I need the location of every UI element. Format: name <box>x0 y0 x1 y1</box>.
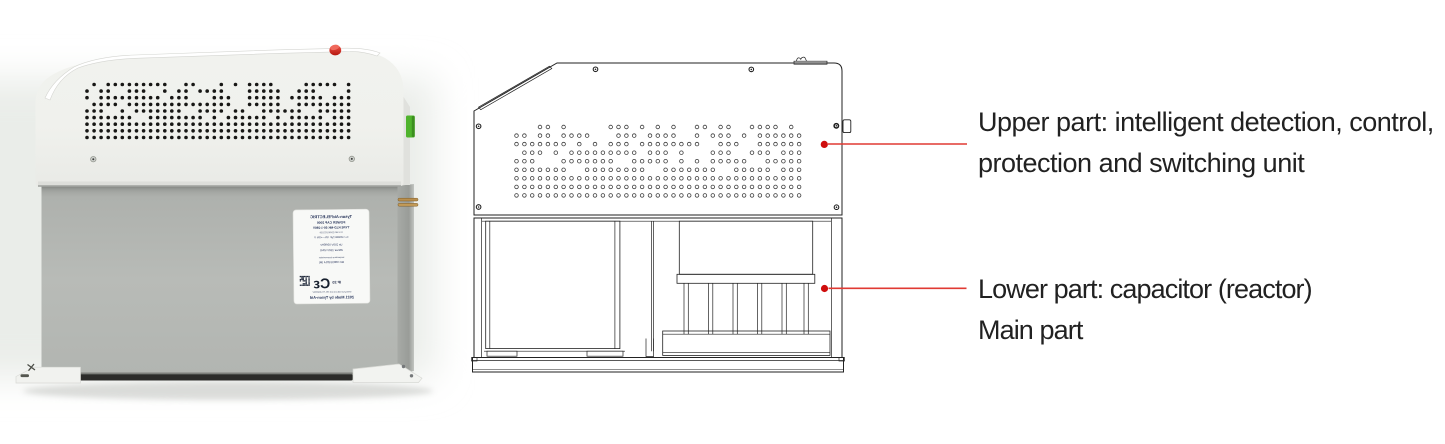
svg-text:Tyson-Aid°ELECTRIC: Tyson-Aid°ELECTRIC <box>310 214 352 219</box>
svg-text:temperature documentation: temperature documentation <box>318 256 344 259</box>
svg-text:2021 Made by Tyson-Aid: 2021 Made by Tyson-Aid <box>309 295 354 299</box>
svg-text:20kvar 250V 50Hz: 20kvar 250V 50Hz <box>319 248 343 252</box>
svg-text:Cε: Cε <box>313 275 330 291</box>
svg-text:TYPE KLD-MK-20-1-280V: TYPE KLD-MK-20-1-280V <box>312 225 350 229</box>
svg-text:Un 250V 50/60Hz: Un 250V 50/60Hz <box>320 242 343 246</box>
svg-text:POWER CAP 2000: POWER CAP 2000 <box>317 220 346 224</box>
svg-text:274 180 /207801/221128: 274 180 /207801/221128 <box>319 232 343 234</box>
svg-text:IEC 60831/2014 (M): IEC 60831/2014 (M) <box>319 260 344 264</box>
svg-text:IP 20: IP 20 <box>332 280 341 284</box>
svg-text:www.tyson-aid.com ind.TR1: www.tyson-aid.com ind.TR1.FCL2022/567 <box>312 290 352 293</box>
svg-text:Cₙ=10/828.7μF ·5% −+5% V: Cₙ=10/828.7μF ·5% −+5% V <box>314 235 348 239</box>
